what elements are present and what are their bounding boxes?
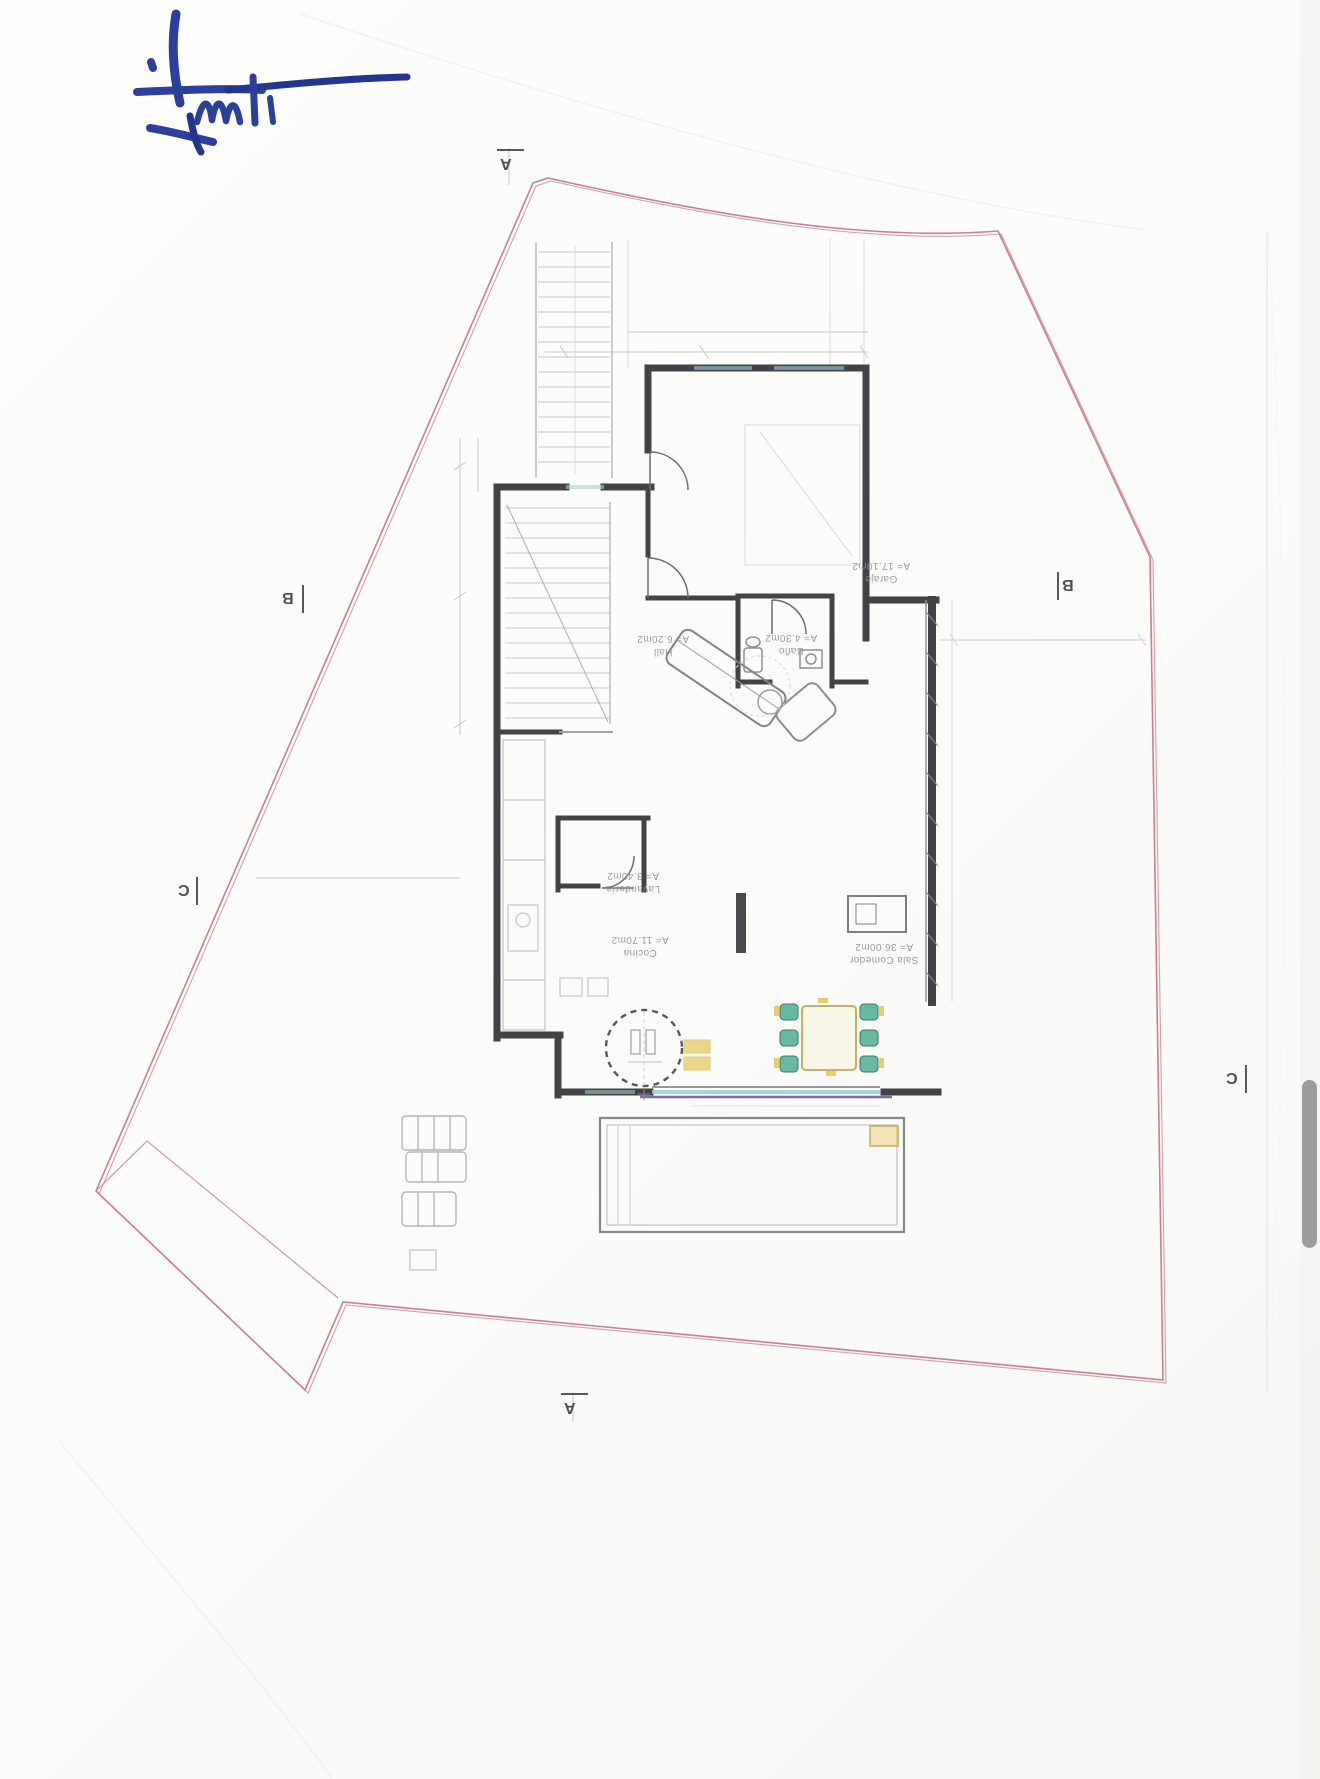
paper-crease-lines <box>60 14 1285 1778</box>
staircase-hatching <box>505 242 612 724</box>
wall-column <box>736 893 746 953</box>
pool-ladder <box>870 1126 898 1146</box>
scrollbar-thumb[interactable] <box>1302 1080 1317 1248</box>
section-marker-b-left: B <box>282 588 294 606</box>
scanned-floor-plan-sheet: GarajeA= 17.10m2 HallA= 6.20m2 BañoA= 4.… <box>0 0 1320 1779</box>
section-marker-c-right: C <box>1226 1068 1238 1086</box>
room-label-hall: HallA= 6.20m2 <box>608 632 718 658</box>
dining-set <box>774 998 884 1076</box>
room-label-lavanderia: LavanderíaA= 3.40m2 <box>573 869 693 895</box>
scrollbar-track <box>1300 0 1320 1779</box>
section-marker-a-top: A <box>500 154 512 172</box>
section-marker-c-left: C <box>178 880 190 898</box>
sun-loungers <box>402 1116 466 1270</box>
door-swing-arcs <box>602 452 806 888</box>
room-label-sala-comedor: Sala ComedorA= 36.00m2 <box>824 940 944 966</box>
section-marker-b-right: B <box>1062 575 1074 593</box>
section-marker-ticks <box>197 150 1246 1394</box>
room-label-bano: BañoA= 4.30m2 <box>736 631 846 657</box>
room-label-cocina: CocinaA= 11.70m2 <box>585 933 695 959</box>
house-walls <box>497 368 938 1095</box>
glazing-sliding-door <box>640 1087 892 1097</box>
section-marker-a-bottom: A <box>564 1398 576 1416</box>
garage-detail <box>745 425 860 565</box>
swimming-pool <box>600 1118 904 1232</box>
signature-ink <box>137 14 407 152</box>
sideboard <box>848 896 906 932</box>
yellow-highlight-blocks <box>684 1040 710 1070</box>
room-label-garaje: GarajeA= 17.10m2 <box>826 559 936 585</box>
plot-boundary <box>96 178 1166 1393</box>
